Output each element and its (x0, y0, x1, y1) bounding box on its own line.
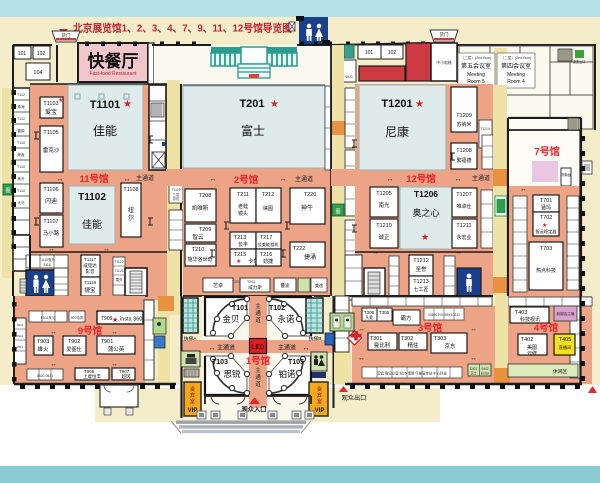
svg-text:图: 图 (5, 188, 10, 194)
svg-text:佳能: 佳能 (82, 218, 102, 231)
svg-text:Fast-food Restaurant: Fast-food Restaurant (90, 71, 138, 77)
svg-text:荣鑫: 荣鑫 (17, 152, 25, 157)
svg-text:T201: T201 (232, 280, 240, 284)
svg-text:T110: T110 (17, 165, 25, 169)
svg-text:宾: 宾 (190, 391, 195, 399)
svg-text:0911: 0911 (17, 323, 24, 327)
svg-text:T1210: T1210 (376, 223, 392, 229)
svg-text:102: 102 (37, 51, 46, 57)
svg-text:老蛙: 老蛙 (238, 203, 248, 210)
svg-text:★: ★ (236, 258, 241, 265)
svg-text:长丰: 长丰 (238, 241, 248, 248)
svg-text:贵: 贵 (190, 385, 195, 393)
svg-text:0912: 0912 (17, 334, 24, 338)
svg-text:T301: T301 (370, 336, 383, 342)
svg-text:T1102: T1102 (78, 192, 106, 203)
svg-text:南光: 南光 (378, 201, 390, 209)
svg-text:↔: ↔ (124, 176, 131, 183)
svg-text:奥之心: 奥之心 (412, 207, 439, 218)
svg-text:劲捷: 劲捷 (263, 258, 273, 265)
svg-text:Room 4: Room 4 (507, 79, 525, 85)
svg-text:T110: T110 (17, 189, 25, 193)
svg-text:扶梯A: 扶梯A (184, 335, 198, 342)
svg-text:↔: ↔ (111, 361, 118, 368)
svg-text:徕图: 徕图 (263, 205, 273, 212)
svg-text:猛玛: 猛玛 (541, 204, 551, 211)
svg-text:蔓途: 蔓途 (281, 282, 290, 289)
svg-text:七工匠: 七工匠 (413, 286, 428, 293)
svg-text:道: 道 (255, 316, 261, 324)
svg-text:↔: ↔ (470, 355, 477, 362)
svg-text:T1117: T1117 (84, 257, 97, 262)
svg-text:T1121: T1121 (114, 269, 123, 273)
svg-text:诚正: 诚正 (378, 233, 390, 241)
svg-text:休闲区: 休闲区 (553, 368, 568, 375)
svg-text:T305: T305 (379, 310, 390, 315)
svg-text:蒲公英: 蒲公英 (108, 345, 125, 353)
svg-text:101: 101 (365, 50, 374, 56)
svg-text:富士: 富士 (470, 371, 477, 376)
svg-text:T302: T302 (401, 336, 414, 342)
svg-text:热点科技: 热点科技 (536, 267, 556, 274)
svg-text:永诺: 永诺 (277, 314, 295, 324)
svg-text:第四会议室: 第四会议室 (501, 62, 531, 70)
svg-text:T215: T215 (234, 252, 247, 258)
svg-text:T112: T112 (17, 93, 25, 97)
svg-text:美途: 美途 (315, 282, 323, 288)
svg-text:珠海: 珠海 (17, 104, 25, 109)
svg-text:907电风: 907电风 (71, 315, 84, 320)
svg-text:济南台: 济南台 (561, 172, 572, 177)
svg-text:036903Y0455Y10312: 036903Y0455Y10312 (428, 313, 460, 317)
svg-text:货门: 货门 (440, 31, 449, 38)
svg-text:↔: ↔ (209, 345, 216, 352)
svg-text:上虞恒丰: 上虞恒丰 (83, 373, 101, 380)
svg-text:T212: T212 (262, 192, 275, 198)
svg-text:T703: T703 (540, 246, 553, 252)
svg-text:instax: instax (481, 372, 490, 376)
svg-text:T902: T902 (68, 339, 81, 345)
svg-text:威登达: 威登达 (83, 262, 97, 269)
svg-text:T210: T210 (192, 247, 205, 253)
svg-text:威力斯: 威力斯 (248, 284, 262, 291)
svg-text:↔: ↔ (358, 355, 365, 362)
svg-text:↔: ↔ (455, 176, 462, 183)
svg-text:T102: T102 (269, 305, 285, 312)
svg-text:T105: T105 (288, 359, 304, 366)
svg-text:第五会议室: 第五会议室 (461, 62, 491, 70)
svg-text:苏纳米: 苏纳米 (456, 121, 471, 128)
svg-text:快餐厅: 快餐厅 (88, 51, 139, 71)
svg-text:T1211: T1211 (456, 223, 471, 229)
svg-text:镜头: 镜头 (238, 210, 248, 217)
svg-text:通道出口: 通道出口 (573, 59, 586, 64)
svg-text:102: 102 (388, 50, 397, 56)
svg-text:★: ★ (542, 222, 547, 229)
svg-text:S401: S401 (470, 367, 478, 371)
svg-text:存包: 存包 (173, 196, 180, 201)
svg-text:至誉: 至誉 (415, 265, 427, 273)
svg-text:主: 主 (255, 366, 261, 374)
svg-text:T1201: T1201 (381, 98, 412, 110)
svg-text:11号馆: 11号馆 (79, 173, 109, 185)
svg-text:佳能: 佳能 (93, 124, 117, 138)
svg-text:图: 图 (335, 209, 340, 215)
svg-text:0620-0621: 0620-0621 (37, 374, 53, 378)
svg-text:T303: T303 (434, 336, 447, 342)
svg-text:直播间: 直播间 (559, 344, 572, 351)
svg-text:T901: T901 (101, 339, 114, 345)
svg-text:T1120: T1120 (114, 260, 123, 264)
svg-text:LED: LED (252, 344, 265, 351)
svg-text:室: 室 (190, 397, 195, 405)
svg-text:9号馆: 9号馆 (78, 325, 103, 337)
svg-text:★: ★ (112, 316, 118, 324)
svg-text:铂诺: 铂诺 (278, 369, 296, 379)
svg-text:爱图仕: 爱图仕 (66, 346, 81, 353)
svg-text:马小路: 马小路 (43, 229, 60, 237)
svg-text:主通道: 主通道 (217, 344, 235, 352)
svg-text:智云: 智云 (192, 233, 204, 241)
svg-text:主: 主 (255, 302, 261, 310)
svg-text:金贝: 金贝 (222, 314, 239, 324)
svg-text:T1105: T1105 (43, 130, 58, 136)
svg-text:T1103: T1103 (43, 101, 58, 107)
svg-text:观众出口: 观众出口 (342, 394, 367, 402)
svg-text:★: ★ (415, 99, 424, 110)
svg-text:E901条兄: E901条兄 (41, 315, 56, 320)
svg-text:雷摄: 雷摄 (17, 128, 25, 133)
svg-text:T306: T306 (364, 310, 375, 315)
svg-text:1号馆: 1号馆 (246, 355, 271, 367)
svg-text:VIP: VIP (188, 408, 198, 414)
svg-text:贵: 贵 (317, 385, 322, 393)
svg-text:T1118: T1118 (84, 280, 97, 285)
svg-text:超冈: 超冈 (122, 373, 131, 380)
svg-text:T208: T208 (199, 193, 212, 199)
svg-text:↔: ↔ (103, 246, 110, 253)
svg-text:↔: ↔ (358, 326, 365, 333)
svg-text:3号馆: 3号馆 (418, 322, 443, 334)
svg-text:★: ★ (123, 99, 132, 110)
svg-text:★: ★ (421, 232, 429, 242)
svg-text:T1213: T1213 (413, 279, 429, 285)
svg-text:↔: ↔ (210, 176, 217, 183)
svg-text:T1214: T1214 (480, 127, 490, 131)
svg-text:104: 104 (33, 70, 42, 76)
svg-text:雄火: 雄火 (37, 345, 49, 353)
svg-text:T701: T701 (540, 198, 553, 204)
svg-text:北京展览馆1、2、3、4、7、9、11、12号馆导览图: 北京展览馆1、2、3、4、7、9、11、12号馆导览图 (73, 22, 292, 35)
svg-text:T1205: T1205 (376, 191, 392, 197)
svg-text:主通道: 主通道 (472, 174, 490, 182)
svg-text:Meeting: Meeting (467, 72, 485, 78)
svg-text:T1207: T1207 (456, 192, 472, 198)
svg-text:施华洛世奇: 施华洛世奇 (187, 256, 212, 263)
svg-text:↔: ↔ (455, 249, 462, 256)
svg-text:捷涌: 捷涌 (304, 253, 316, 261)
svg-text:思锐: 思锐 (223, 369, 241, 379)
svg-text:唯卓仕: 唯卓仕 (456, 203, 471, 210)
svg-text:T211: T211 (237, 192, 249, 198)
svg-text:主通道: 主通道 (295, 175, 313, 183)
svg-text:T1206: T1206 (414, 189, 438, 199)
svg-text:佳美能相机: 佳美能相机 (258, 241, 280, 248)
svg-text:（二层）(2nd floor): （二层）(2nd floor) (461, 55, 492, 60)
svg-text:T1108: T1108 (123, 187, 138, 193)
svg-text:雷克沙: 雷克沙 (43, 147, 60, 154)
svg-text:美升: 美升 (17, 176, 25, 181)
svg-text:↔: ↔ (280, 176, 287, 183)
svg-text:通: 通 (255, 373, 261, 381)
svg-text:↔: ↔ (50, 361, 57, 368)
svg-text:曼比利: 曼比利 (374, 341, 391, 349)
svg-text:↔: ↔ (470, 326, 477, 333)
svg-text:T1110惠升: T1110惠升 (39, 257, 55, 262)
svg-text:VIP: VIP (315, 408, 325, 414)
svg-text:T1119: T1119 (172, 188, 181, 192)
svg-text:捷宝: 捷宝 (84, 286, 96, 294)
svg-text:新摄会主播: 新摄会主播 (557, 311, 575, 316)
svg-text:室: 室 (317, 397, 322, 405)
svg-text:T209: T209 (199, 227, 212, 233)
svg-text:101: 101 (18, 51, 27, 57)
svg-text:T1106: T1106 (43, 187, 58, 193)
svg-text:T702: T702 (540, 215, 553, 221)
svg-text:0913: 0913 (17, 345, 24, 349)
svg-text:T110: T110 (17, 141, 25, 145)
svg-text:宾: 宾 (317, 391, 322, 399)
svg-text:T101: T101 (232, 305, 248, 312)
svg-text:insta 360: insta 360 (120, 317, 142, 323)
svg-text:★: ★ (58, 97, 63, 104)
svg-text:中小电梯: 中小电梯 (436, 60, 451, 65)
svg-text:T201: T201 (239, 98, 264, 110)
svg-text:凯唯斯: 凯唯斯 (192, 204, 209, 212)
svg-text:↔: ↔ (372, 249, 379, 256)
svg-text:T112: T112 (17, 117, 25, 121)
svg-text:↔: ↔ (520, 186, 527, 193)
svg-text:爱宝: 爱宝 (45, 108, 57, 116)
svg-text:智云稳定器: 智云稳定器 (536, 228, 558, 235)
svg-text:T903: T903 (37, 339, 50, 345)
svg-text:扶梯B: 扶梯B (309, 335, 322, 342)
svg-text:T103: T103 (212, 359, 228, 366)
svg-text:T213: T213 (234, 235, 247, 241)
svg-text:云修: 云修 (527, 350, 537, 357)
svg-text:T217: T217 (260, 235, 273, 241)
svg-text:主通道: 主通道 (278, 344, 296, 352)
svg-text:凡奥: 凡奥 (365, 315, 373, 320)
svg-text:影音: 影音 (86, 268, 95, 275)
svg-text:天马: 天马 (17, 200, 25, 205)
svg-text:T222: T222 (293, 246, 306, 252)
svg-text:7号馆: 7号馆 (534, 145, 560, 158)
svg-text:T1208: T1208 (456, 148, 472, 154)
svg-text:↔: ↔ (387, 176, 394, 183)
svg-text:货门: 货门 (62, 32, 71, 39)
svg-text:尔: 尔 (128, 214, 134, 222)
svg-text:3116: 3116 (43, 263, 50, 267)
svg-text:科技视讯: 科技视讯 (520, 316, 540, 323)
svg-text:永宏业: 永宏业 (456, 234, 471, 241)
svg-text:T403: T403 (515, 310, 528, 316)
svg-text:4号馆: 4号馆 (534, 322, 559, 334)
svg-text:T1101: T1101 (90, 99, 121, 111)
svg-text:美图: 美图 (527, 344, 537, 351)
svg-text:纽: 纽 (128, 206, 134, 214)
svg-text:通: 通 (255, 309, 261, 317)
svg-text:围充: 围充 (116, 277, 123, 282)
svg-text:艺卓: 艺卓 (213, 282, 223, 289)
svg-text:★: ★ (270, 99, 279, 110)
svg-text:↔: ↔ (48, 246, 55, 253)
svg-text:闪迪: 闪迪 (45, 197, 57, 205)
svg-text:↔: ↔ (111, 329, 118, 336)
svg-text:霸方: 霸方 (400, 314, 412, 322)
svg-text:主通道: 主通道 (136, 174, 154, 182)
svg-text:T405: T405 (559, 337, 572, 343)
svg-text:（二层）(2nd floor): （二层）(2nd floor) (501, 55, 532, 60)
svg-text:T909: T909 (101, 316, 113, 322)
svg-text:Meeting: Meeting (507, 72, 525, 78)
svg-text:T216: T216 (260, 252, 273, 258)
svg-text:尼康: 尼康 (385, 124, 409, 139)
svg-text:↔: ↔ (50, 329, 57, 336)
svg-text:T203: T203 (247, 280, 255, 284)
svg-text:↔: ↔ (303, 345, 310, 352)
svg-text:T1209: T1209 (456, 113, 472, 119)
svg-text:T1212: T1212 (413, 258, 429, 264)
svg-text:宏震 微记立震 知25 博犀 气象宣传站 中心科技: 宏震 微记立震 知25 博犀 气象宣传站 中心科技 (377, 371, 447, 376)
svg-text:京东: 京东 (444, 342, 456, 350)
svg-text:↔: ↔ (57, 176, 64, 183)
svg-text:T1107: T1107 (43, 219, 58, 225)
svg-text:神牛: 神牛 (301, 204, 313, 212)
svg-text:S402: S402 (481, 367, 489, 371)
svg-text:2号馆: 2号馆 (234, 174, 259, 186)
svg-text:道: 道 (255, 380, 261, 388)
svg-text:繁福德: 繁福德 (456, 157, 471, 164)
svg-text:精住: 精住 (407, 341, 419, 349)
svg-text:12号馆: 12号馆 (406, 173, 436, 185)
svg-text:W.C: W.C (345, 74, 353, 79)
svg-text:T402: T402 (521, 337, 534, 343)
svg-text:富士: 富士 (241, 123, 265, 138)
svg-text:T220: T220 (304, 192, 317, 198)
